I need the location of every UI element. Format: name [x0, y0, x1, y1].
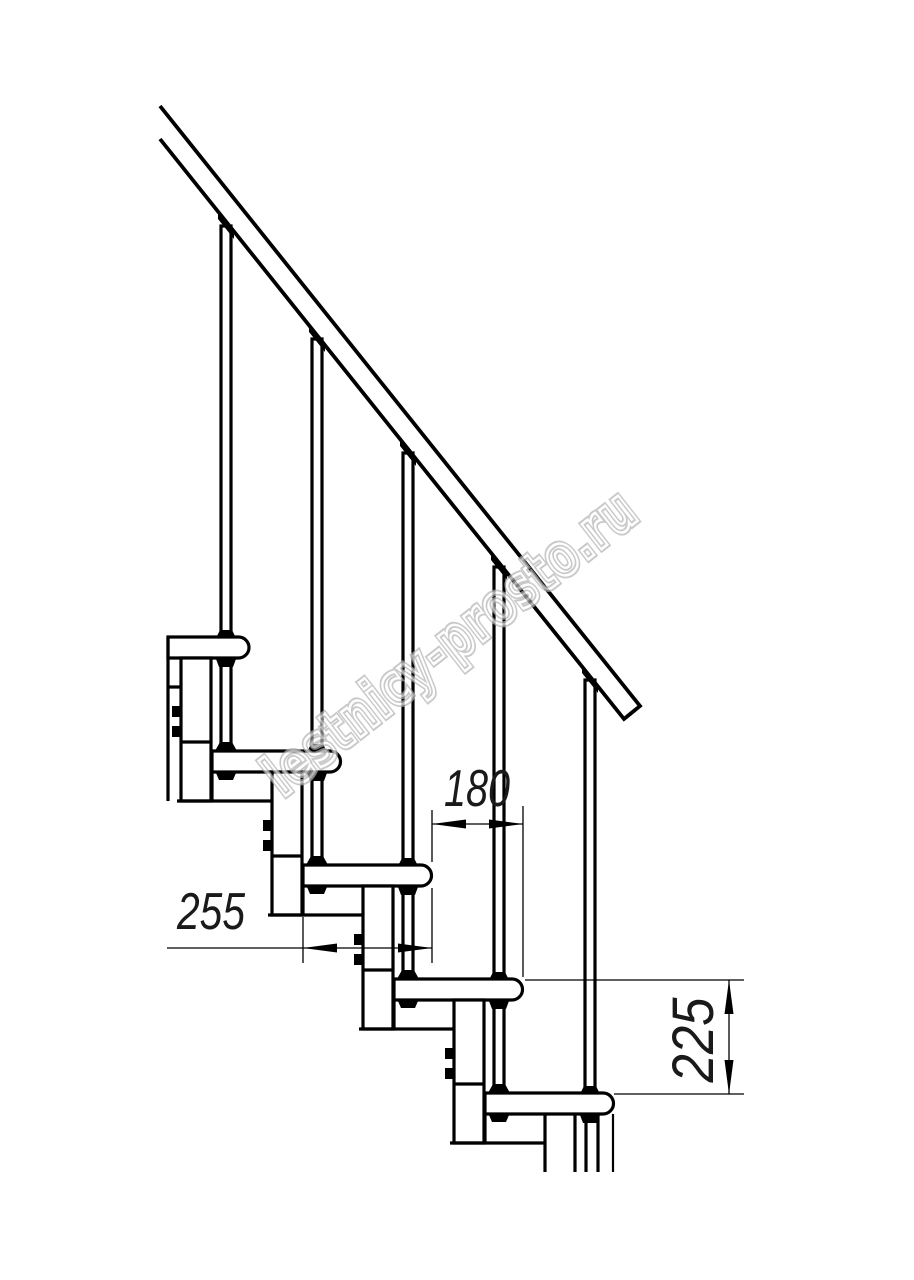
- through-nut: [307, 887, 327, 894]
- baluster-2: [312, 339, 322, 751]
- stair-technical-drawing: 180 255 225 lestnicy-prosto.ru lestnicy-…: [0, 0, 914, 1280]
- tread-4: [394, 979, 523, 1000]
- baluster-foot: [216, 630, 236, 638]
- module-5-cropped: [545, 1114, 575, 1172]
- module-bolt: [445, 1068, 454, 1079]
- arrow-right-icon: [398, 944, 432, 953]
- module-bolt: [263, 820, 272, 831]
- module-bolt: [445, 1048, 454, 1059]
- rod-landing-flare: [488, 1084, 510, 1093]
- module-bolt: [172, 706, 181, 717]
- baluster-5: [585, 680, 595, 1093]
- tread-5: [485, 1093, 614, 1114]
- rod-3: [403, 886, 413, 979]
- tread-1: [168, 637, 249, 658]
- under-tread-nut: [216, 659, 236, 667]
- baluster-foot: [398, 858, 418, 866]
- rod-landing-flare: [306, 856, 328, 865]
- drawing-page: 180 255 225 lestnicy-prosto.ru lestnicy-…: [0, 0, 914, 1280]
- module-3: [363, 886, 393, 1029]
- through-nut: [489, 1115, 509, 1122]
- tread-back-risers: [212, 772, 485, 1143]
- dimension-value-tread-depth: 255: [176, 883, 246, 941]
- dimension-value-step-run: 180: [444, 760, 510, 818]
- module-4: [454, 1000, 484, 1143]
- module-bolt: [263, 840, 272, 851]
- module-bolt: [172, 726, 181, 737]
- under-tread-nut: [398, 887, 418, 895]
- tread-3: [303, 865, 432, 886]
- baluster-foot: [580, 1086, 600, 1094]
- baluster-1: [221, 226, 231, 637]
- under-tread-nut: [489, 1001, 509, 1009]
- arrow-left-icon: [432, 820, 466, 829]
- module-bolt: [354, 934, 363, 945]
- module-bolt: [354, 954, 363, 965]
- rod-landing-flare: [397, 970, 419, 979]
- rod-landing-flare: [215, 742, 237, 751]
- baluster-foot: [489, 972, 509, 980]
- dimension-value-step-rise: 225: [661, 997, 726, 1084]
- through-nut: [216, 773, 236, 780]
- arrow-right-icon: [489, 820, 523, 829]
- rod-1: [221, 658, 231, 751]
- left-cut-edge: [168, 637, 181, 801]
- arrow-left-icon: [303, 944, 337, 953]
- rod-4: [494, 1000, 504, 1093]
- under-tread-nut: [580, 1115, 600, 1123]
- through-nut: [398, 1001, 418, 1008]
- module-1: [181, 658, 211, 801]
